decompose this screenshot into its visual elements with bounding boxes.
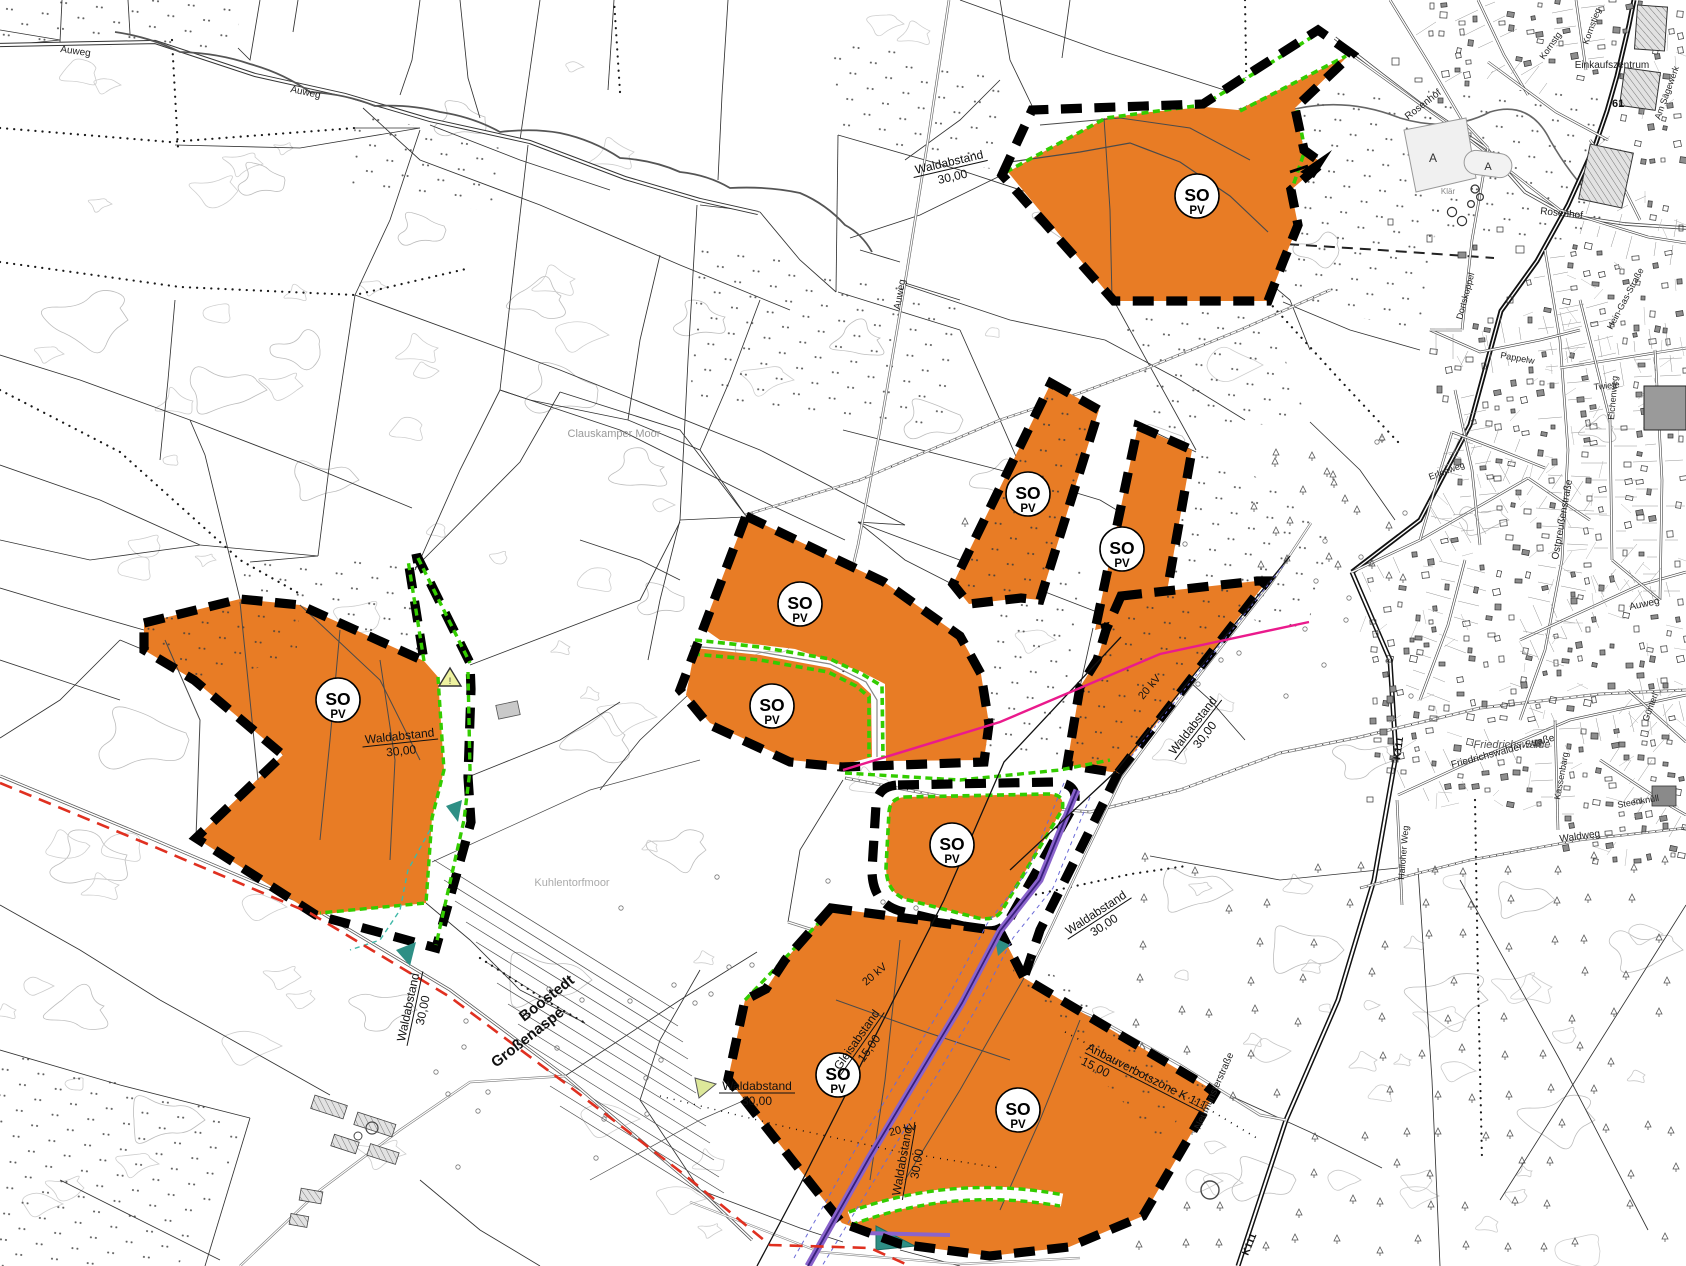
svg-text:SO: SO xyxy=(325,689,350,709)
svg-text:Kuhlentorfmoor: Kuhlentorfmoor xyxy=(534,877,610,889)
svg-text:PV: PV xyxy=(830,1084,846,1096)
svg-text:PV: PV xyxy=(1114,558,1130,570)
svg-text:Waldabstand: Waldabstand xyxy=(722,1079,792,1093)
svg-text:PV: PV xyxy=(330,709,346,721)
svg-text:PV: PV xyxy=(1020,503,1036,515)
svg-text:SO: SO xyxy=(1184,185,1209,205)
svg-text:PV: PV xyxy=(764,715,780,727)
svg-text:A: A xyxy=(1484,161,1492,173)
svg-text:Einkaufszentrum: Einkaufszentrum xyxy=(1575,60,1649,71)
svg-text:SO: SO xyxy=(939,834,964,854)
svg-text:Clauskamper Moor: Clauskamper Moor xyxy=(568,428,661,440)
svg-text:61: 61 xyxy=(1612,98,1624,110)
svg-text:SO: SO xyxy=(1109,538,1134,558)
svg-text:A: A xyxy=(1429,151,1437,165)
svg-text:PV: PV xyxy=(1189,205,1205,217)
svg-text:!: ! xyxy=(449,676,452,686)
svg-text:SO: SO xyxy=(1015,483,1040,503)
svg-text:SO: SO xyxy=(787,593,812,613)
svg-text:SO: SO xyxy=(1005,1099,1030,1119)
svg-text:Klär: Klär xyxy=(1441,187,1456,196)
svg-text:PV: PV xyxy=(1010,1119,1026,1131)
svg-text:30,00: 30,00 xyxy=(742,1094,772,1108)
svg-text:PV: PV xyxy=(792,613,808,625)
svg-text:SO: SO xyxy=(759,695,784,715)
svg-text:PV: PV xyxy=(944,854,960,866)
